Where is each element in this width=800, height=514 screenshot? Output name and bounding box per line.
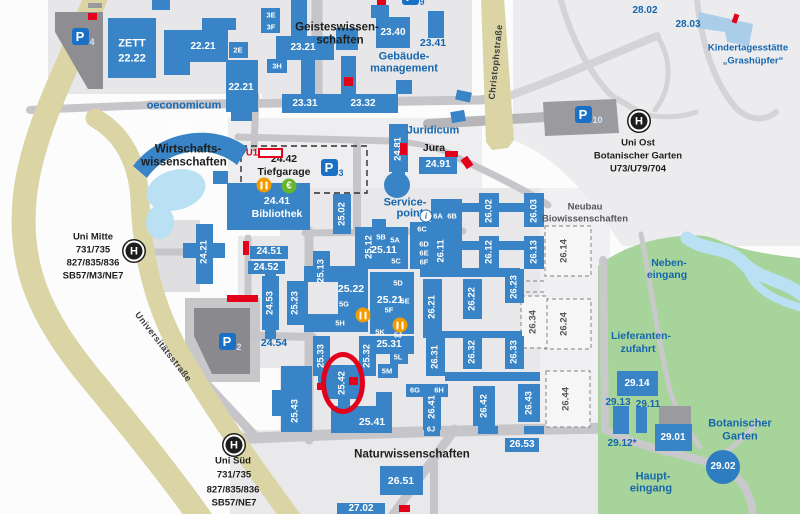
map-label-25-41: 25.41 (359, 417, 385, 428)
map-label-27-02: 27.02 (348, 504, 373, 514)
map-label-29-11: 29.11 (636, 400, 660, 410)
map-label-25-21: 25.21 (377, 295, 403, 306)
map-label-22-21: 22.21 (228, 83, 253, 93)
map-label-29-02: 29.02 (710, 462, 735, 472)
map-label-garten: Garten (722, 432, 757, 443)
map-label-5a: 5A (390, 236, 400, 244)
map-label-23-41: 23.41 (420, 38, 446, 49)
map-label-eingang: eingang (647, 270, 687, 281)
map-label-uni-ost: Uni Ost (621, 138, 655, 148)
map-label-22-22: 22.22 (118, 54, 146, 65)
map-label-23-32: 23.32 (350, 99, 375, 109)
map-label-24-91: 24.91 (425, 160, 450, 170)
map-label-geisteswissen: Geisteswissen- (295, 22, 379, 34)
parking-number: 9 (420, 0, 425, 7)
map-label-5l: 5L (394, 353, 403, 361)
map-label-29-12: 29.12* (608, 439, 637, 449)
map-label-3f: 3F (267, 23, 276, 31)
construction-marker-icon-7 (461, 156, 474, 170)
map-label-neben: Neben- (651, 258, 687, 269)
map-label-26-24: 26.24 (559, 312, 569, 336)
construction-marker-icon-12 (399, 505, 410, 512)
map-label-5f: 5F (385, 306, 394, 314)
map-label-schaften: schaften (316, 35, 363, 47)
parking-icon: P (219, 333, 236, 350)
parking-sign-p10: P10 (575, 106, 605, 126)
map-label-26-32: 26.32 (467, 340, 477, 364)
map-label-5d: 5D (393, 279, 403, 287)
map-label-25-13: 25.13 (316, 259, 326, 283)
fork-knife-icon (257, 178, 272, 193)
construction-marker-icon-5 (400, 143, 407, 155)
map-label-5k: 5K (375, 328, 385, 336)
map-label-6c: 6C (417, 225, 427, 233)
map-label-zett: ZETT (118, 39, 146, 50)
map-label-24-52: 24.52 (253, 263, 278, 273)
map-label-25-23: 25.23 (290, 291, 300, 315)
map-label-botanischer-garten: Botanischer Garten (594, 151, 682, 161)
construction-marker-icon-1 (88, 13, 97, 20)
map-label-24-21: 24.21 (199, 240, 209, 264)
parking-icon: P (72, 28, 89, 45)
map-label-25-31: 25.31 (376, 340, 401, 350)
parking-icon: P (575, 106, 592, 123)
map-label-26-13: 26.13 (529, 240, 539, 264)
map-label-5c: 5C (391, 257, 401, 265)
map-label-24-53: 24.53 (265, 291, 275, 315)
euro-icon: € (282, 179, 297, 194)
map-label-23-40: 23.40 (380, 28, 405, 38)
parking-icon: P (402, 0, 419, 5)
map-label-5b: 5B (376, 233, 386, 241)
bus-stop-icon-1: H (126, 243, 143, 260)
map-label-26-44: 26.44 (561, 387, 571, 411)
map-label-universitätsstraße: Universitätsstraße (133, 310, 193, 383)
map-label-juridicum: Juridicum (407, 126, 460, 137)
map-label-6e: 6E (419, 249, 428, 257)
map-label-6h: 6H (434, 386, 444, 394)
map-label-wirtschafts: Wirtschafts- (155, 144, 221, 156)
map-label-23-31: 23.31 (292, 99, 317, 109)
construction-marker-icon-4 (344, 77, 353, 86)
map-label-naturwissenschaften: Naturwissenschaften (354, 449, 470, 461)
info-icon: i (420, 210, 433, 223)
map-label-26-41: 26.41 (427, 395, 437, 419)
map-label-eingang: eingang (630, 484, 672, 495)
map-label-oeconomicum: oeconomicum (147, 101, 222, 112)
map-overlay: ZETT22.2222.212E22.213E3F23.213H23.3123.… (0, 0, 800, 514)
map-label-tiefgarage: Tiefgarage (258, 167, 311, 178)
parking-number: 4 (90, 37, 95, 47)
map-label-kindertagesstätte: Kindertagesstätte (708, 43, 788, 53)
map-label-25-32: 25.32 (362, 344, 372, 368)
map-label-botanischer: Botanischer (708, 419, 772, 430)
map-label-26-03: 26.03 (529, 199, 539, 223)
construction-marker-icon-3 (732, 13, 740, 23)
parking-number: 3 (339, 168, 344, 178)
map-label-5g: 5G (339, 300, 349, 308)
map-label-827-835-836: 827/835/836 (207, 485, 260, 495)
map-label-zufahrt: zufahrt (621, 344, 656, 355)
parking-number: 10 (593, 115, 603, 125)
map-label-uni-süd: Uni Süd (215, 456, 251, 466)
map-label-24-31: 24.31 (171, 125, 196, 135)
map-label-3h: 3H (272, 62, 282, 70)
map-label-26-12: 26.12 (484, 240, 494, 264)
map-label-731-735: 731/735 (76, 245, 110, 255)
map-label-26-31: 26.31 (430, 345, 440, 369)
map-label-26-14: 26.14 (559, 239, 569, 263)
map-label-28-02: 28.02 (632, 6, 657, 16)
map-label-26-11: 26.11 (436, 239, 446, 262)
map-label-6a: 6A (433, 212, 443, 220)
parking-number: 2 (237, 342, 242, 352)
map-label-26-51: 26.51 (388, 476, 414, 487)
map-label-lieferanten: Lieferanten- (611, 331, 671, 342)
map-label-29-13: 29.13 (605, 398, 630, 408)
map-label-26-33: 26.33 (509, 340, 519, 364)
map-label-5e: 5E (400, 297, 409, 305)
map-label-neubau: Neubau (568, 202, 603, 212)
map-label-sb57-m3-ne7: SB57/M3/NE7 (63, 271, 124, 281)
fork-knife-icon (356, 308, 371, 323)
map-label-uni-mitte: Uni Mitte (73, 232, 113, 242)
map-label-6j: 6J (427, 425, 435, 433)
parking-sign-p9: P9 (402, 0, 432, 8)
map-label-bibliothek: Bibliothek (252, 209, 303, 220)
map-label-u73-u79-704: U73/U79/704 (610, 164, 666, 174)
map-label-28-03: 28.03 (675, 20, 700, 30)
map-label-25-02: 25.02 (337, 202, 347, 226)
map-label-827-835-836: 827/835/836 (67, 258, 120, 268)
map-label-6d: 6D (419, 240, 429, 248)
map-label-management: management (370, 64, 438, 75)
map-label-25-11: 25.11 (371, 245, 397, 256)
map-label-29-01: 29.01 (660, 433, 685, 443)
map-label-26-23: 26.23 (509, 275, 519, 299)
map-label-sb57-ne7: SB57/NE7 (212, 498, 257, 508)
map-label-christophstraße: Christophstraße (488, 24, 505, 100)
map-label-2e: 2E (233, 46, 242, 54)
map-label-jura: Jura (423, 143, 445, 154)
u1-outline-marker (258, 148, 283, 158)
map-label-24-54: 24.54 (261, 338, 287, 349)
parking-icon: P (321, 159, 338, 176)
campus-map[interactable]: ZETT22.2222.212E22.213E3F23.213H23.3123.… (0, 0, 800, 514)
map-label-25-12: 25.12 (364, 235, 374, 259)
map-label-26-43: 26.43 (524, 391, 534, 415)
map-label-24-41: 24.41 (264, 196, 290, 207)
map-label-25-43: 25.43 (290, 399, 300, 423)
map-label-6f: 6F (420, 258, 429, 266)
construction-marker-icon-2 (377, 0, 386, 5)
map-label-5m: 5M (382, 367, 392, 375)
map-label-22-21: 22.21 (190, 42, 215, 52)
construction-marker-icon-8 (243, 241, 249, 255)
fork-knife-icon (393, 318, 408, 333)
map-label-24-51: 24.51 (256, 247, 281, 257)
map-label-3e: 3E (266, 11, 275, 19)
map-label-wissenschaften: wissenschaften (141, 157, 227, 169)
construction-marker-icon-6 (445, 151, 458, 157)
map-label-26-42: 26.42 (479, 394, 489, 418)
bus-stop-icon-3: H (226, 437, 243, 454)
bus-stop-icon-2: H (631, 113, 648, 130)
highlight-circle-25-42 (321, 352, 365, 414)
map-label-23-21: 23.21 (290, 43, 315, 53)
map-label-u1: U1 (246, 148, 258, 158)
construction-marker-icon-9 (227, 295, 258, 302)
parking-sign-p2: P2 (219, 333, 249, 353)
map-label-25-22: 25.22 (338, 284, 364, 295)
map-label-26-22: 26.22 (467, 287, 477, 311)
map-label-26-02: 26.02 (484, 199, 494, 223)
map-label-biowissenschaften: Biowissenschaften (542, 214, 628, 224)
map-label-731-735: 731/735 (217, 470, 251, 480)
map-label-29-14: 29.14 (624, 379, 649, 389)
map-label-5h: 5H (335, 319, 345, 327)
map-label-grashüpfer: „Grashüpfer“ (723, 56, 784, 66)
map-label-haupt: Haupt- (636, 472, 671, 483)
parking-sign-p4: P4 (72, 28, 102, 48)
map-label-26-21: 26.21 (427, 295, 437, 319)
map-label-26-53: 26.53 (509, 440, 534, 450)
map-label-gebäude: Gebäude- (379, 52, 430, 63)
map-label-6b: 6B (447, 212, 457, 220)
map-label-6g: 6G (410, 386, 420, 394)
parking-sign-p3: P3 (321, 159, 351, 179)
map-label-26-34: 26.34 (528, 310, 538, 334)
